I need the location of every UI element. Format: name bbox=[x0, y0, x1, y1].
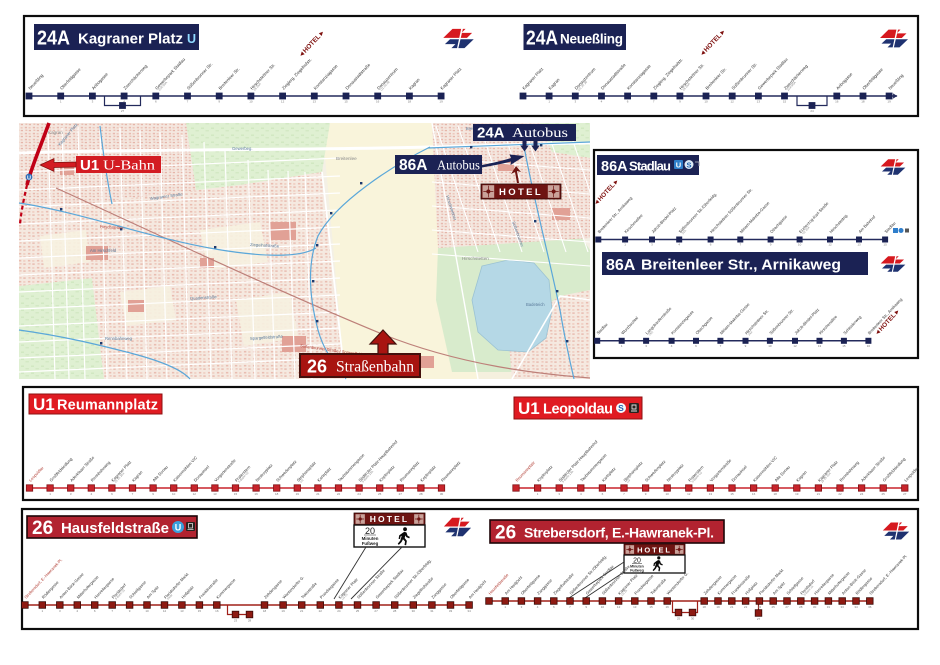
svg-text:24: 24 bbox=[758, 605, 762, 609]
svg-text:19: 19 bbox=[439, 100, 443, 104]
svg-text:15: 15 bbox=[842, 344, 846, 348]
svg-text:13: 13 bbox=[633, 605, 637, 609]
svg-text:10: 10 bbox=[666, 492, 670, 496]
svg-text:12: 12 bbox=[193, 492, 197, 496]
svg-text:U: U bbox=[187, 32, 196, 46]
svg-text:Straßenbahn: Straßenbahn bbox=[336, 359, 414, 376]
svg-text:21: 21 bbox=[817, 492, 821, 496]
svg-text:Breitenlee: Breitenlee bbox=[336, 156, 357, 161]
svg-text:HOTEL: HOTEL bbox=[637, 545, 672, 554]
svg-text:28: 28 bbox=[419, 492, 423, 496]
svg-text:10: 10 bbox=[798, 243, 802, 247]
svg-text:24: 24 bbox=[810, 109, 814, 113]
svg-text:22: 22 bbox=[319, 609, 323, 613]
svg-text:HOTEL: HOTEL bbox=[370, 514, 409, 524]
svg-text:Am Hirschfeld: Am Hirschfeld bbox=[90, 248, 117, 253]
svg-text:12: 12 bbox=[828, 243, 832, 247]
svg-text:21: 21 bbox=[316, 492, 320, 496]
svg-text:Gewerbeg.: Gewerbeg. bbox=[232, 146, 252, 151]
svg-text:12: 12 bbox=[687, 492, 691, 496]
svg-text:18: 18 bbox=[774, 492, 778, 496]
svg-text:18: 18 bbox=[703, 605, 707, 609]
svg-text:27: 27 bbox=[757, 617, 761, 621]
svg-text:HOTEL: HOTEL bbox=[499, 187, 543, 198]
svg-text:19: 19 bbox=[281, 609, 285, 613]
svg-text:25: 25 bbox=[378, 492, 382, 496]
svg-text:10: 10 bbox=[145, 609, 149, 613]
svg-text:Stadlau: Stadlau bbox=[629, 159, 671, 174]
svg-text:S: S bbox=[618, 403, 624, 413]
svg-text:15: 15 bbox=[883, 243, 887, 247]
svg-text:18: 18 bbox=[263, 609, 267, 613]
svg-text:15: 15 bbox=[344, 100, 348, 104]
svg-text:22: 22 bbox=[838, 492, 842, 496]
svg-text:19: 19 bbox=[795, 492, 799, 496]
svg-text:18: 18 bbox=[275, 492, 279, 496]
svg-text:25: 25 bbox=[772, 605, 776, 609]
svg-text:U: U bbox=[676, 161, 681, 170]
svg-text:18: 18 bbox=[408, 100, 412, 104]
svg-text:27: 27 bbox=[374, 609, 378, 613]
svg-text:31: 31 bbox=[430, 609, 434, 613]
svg-text:19: 19 bbox=[716, 605, 720, 609]
svg-text:28: 28 bbox=[248, 618, 252, 622]
svg-text:16: 16 bbox=[254, 492, 258, 496]
svg-text:27: 27 bbox=[121, 109, 125, 113]
svg-text:12: 12 bbox=[731, 100, 735, 104]
svg-text:Reumannplatz: Reumannplatz bbox=[57, 398, 158, 414]
svg-text:13: 13 bbox=[818, 344, 822, 348]
svg-text:15: 15 bbox=[783, 100, 787, 104]
svg-text:86A: 86A bbox=[606, 257, 636, 274]
svg-text:Neueßling: Neueßling bbox=[560, 32, 623, 47]
svg-text:24: 24 bbox=[337, 609, 341, 613]
svg-text:Hausfeldstraße: Hausfeldstraße bbox=[61, 520, 169, 537]
svg-text:Autobus: Autobus bbox=[437, 159, 480, 174]
svg-text:Hirschstetten: Hirschstetten bbox=[462, 256, 489, 261]
svg-text:Kagran: Kagran bbox=[48, 130, 63, 135]
svg-text:10: 10 bbox=[172, 492, 176, 496]
svg-text:13: 13 bbox=[709, 492, 713, 496]
svg-text:16: 16 bbox=[752, 492, 756, 496]
svg-text:13: 13 bbox=[757, 100, 761, 104]
svg-text:16: 16 bbox=[215, 609, 219, 613]
svg-text:12: 12 bbox=[617, 605, 621, 609]
svg-text:15: 15 bbox=[234, 492, 238, 496]
svg-text:21: 21 bbox=[300, 609, 304, 613]
svg-text:26: 26 bbox=[307, 357, 327, 377]
svg-text:10: 10 bbox=[601, 605, 605, 609]
svg-text:10: 10 bbox=[704, 100, 708, 104]
svg-text:15: 15 bbox=[649, 605, 653, 609]
svg-text:31: 31 bbox=[827, 605, 831, 609]
svg-text:26: 26 bbox=[495, 523, 516, 544]
svg-text:33: 33 bbox=[841, 605, 845, 609]
svg-text:86A: 86A bbox=[601, 159, 628, 175]
svg-text:30: 30 bbox=[813, 605, 817, 609]
svg-text:U: U bbox=[27, 176, 31, 182]
svg-text:12: 12 bbox=[281, 100, 285, 104]
svg-text:34: 34 bbox=[854, 605, 858, 609]
svg-text:13: 13 bbox=[180, 609, 184, 613]
svg-text:24: 24 bbox=[357, 492, 361, 496]
svg-text:16: 16 bbox=[666, 605, 670, 609]
svg-text:10: 10 bbox=[768, 344, 772, 348]
svg-text:27: 27 bbox=[903, 492, 907, 496]
svg-text:19: 19 bbox=[296, 492, 300, 496]
svg-text:25: 25 bbox=[356, 609, 360, 613]
svg-text:24A: 24A bbox=[477, 125, 505, 142]
svg-text:20: 20 bbox=[365, 526, 375, 536]
svg-text:13: 13 bbox=[857, 243, 861, 247]
svg-text:15: 15 bbox=[730, 492, 734, 496]
svg-text:21: 21 bbox=[730, 605, 734, 609]
svg-text:33: 33 bbox=[449, 609, 453, 613]
svg-text:S: S bbox=[686, 161, 691, 170]
svg-text:12: 12 bbox=[163, 609, 167, 613]
svg-text:86A: 86A bbox=[399, 157, 427, 174]
svg-text:Badeteich: Badeteich bbox=[526, 302, 545, 307]
svg-text:30: 30 bbox=[691, 616, 695, 620]
svg-text:22: 22 bbox=[744, 605, 748, 609]
svg-text:24A: 24A bbox=[37, 28, 70, 50]
svg-text:30: 30 bbox=[440, 492, 444, 496]
svg-text:13: 13 bbox=[213, 492, 217, 496]
svg-text:23: 23 bbox=[234, 618, 238, 622]
svg-text:U1: U1 bbox=[33, 395, 55, 414]
svg-text:26: 26 bbox=[32, 518, 53, 539]
svg-text:28: 28 bbox=[799, 605, 803, 609]
svg-text:30: 30 bbox=[412, 609, 416, 613]
svg-text:25: 25 bbox=[677, 616, 681, 620]
svg-text:24: 24 bbox=[860, 492, 864, 496]
svg-text:Autobus: Autobus bbox=[512, 125, 568, 140]
svg-text:Rennbahnweg: Rennbahnweg bbox=[105, 336, 133, 341]
svg-text:U: U bbox=[175, 523, 182, 533]
svg-text:27: 27 bbox=[399, 492, 403, 496]
svg-text:25: 25 bbox=[882, 492, 886, 496]
svg-text:19: 19 bbox=[887, 100, 891, 104]
svg-text:24A: 24A bbox=[526, 28, 558, 50]
svg-text:Fußweg: Fußweg bbox=[630, 569, 644, 573]
svg-text:13: 13 bbox=[313, 100, 317, 104]
svg-text:Fußweg: Fußweg bbox=[362, 541, 379, 546]
svg-text:U1: U1 bbox=[518, 399, 540, 418]
svg-text:Kagraner Platz: Kagraner Platz bbox=[78, 31, 183, 48]
svg-text:U-Bahn: U-Bahn bbox=[103, 159, 155, 174]
svg-text:18: 18 bbox=[861, 100, 865, 104]
svg-text:Leopoldau: Leopoldau bbox=[543, 402, 613, 418]
svg-text:Strebersdorf, E.-Hawranek-Pl.: Strebersdorf, E.-Hawranek-Pl. bbox=[524, 525, 714, 541]
svg-text:28: 28 bbox=[393, 609, 397, 613]
svg-text:27: 27 bbox=[785, 605, 789, 609]
svg-text:10: 10 bbox=[249, 100, 253, 104]
svg-text:16: 16 bbox=[867, 344, 871, 348]
svg-text:16: 16 bbox=[376, 100, 380, 104]
svg-text:22: 22 bbox=[337, 492, 341, 496]
svg-text:16: 16 bbox=[835, 100, 839, 104]
svg-text:Breitenleer Str., Arnikaweg: Breitenleer Str., Arnikaweg bbox=[641, 258, 841, 274]
svg-text:36: 36 bbox=[868, 605, 872, 609]
svg-text:15: 15 bbox=[198, 609, 202, 613]
svg-text:34: 34 bbox=[467, 609, 471, 613]
svg-text:U1: U1 bbox=[80, 157, 99, 174]
svg-text:12: 12 bbox=[793, 344, 797, 348]
